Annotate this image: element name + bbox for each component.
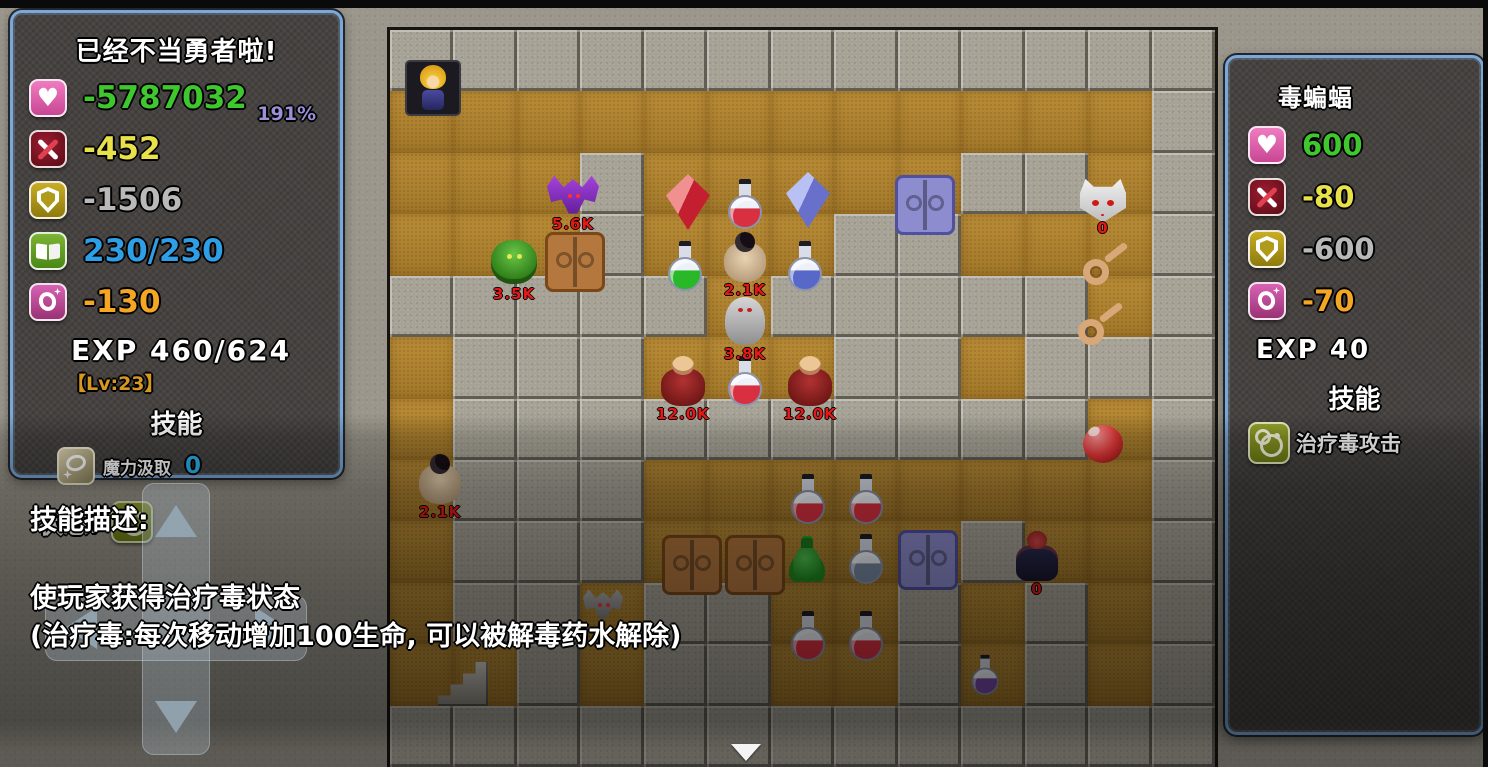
- skull-bat-enemy[interactable]: 0: [1080, 178, 1126, 222]
- red-orb-item[interactable]: [1075, 415, 1131, 471]
- top-black-bar: [0, 0, 1488, 8]
- player-panel-title: 已经不当勇者啦!: [29, 31, 324, 68]
- player-hp-percent: 191%: [257, 103, 316, 125]
- entity-value-label: 12.0K: [641, 405, 725, 423]
- entity-value-label: 3.8K: [703, 345, 787, 363]
- red-potion-item[interactable]: [838, 607, 894, 663]
- entity-value-label: 5.6K: [533, 215, 613, 233]
- player-magic-value: -130: [83, 284, 161, 320]
- player-skill-value: 0: [185, 453, 201, 479]
- red-crystal-item[interactable]: [666, 174, 710, 230]
- entity-value-label: 2.1K: [398, 503, 482, 521]
- game-screen: 5.6K3.5K2.1K3.8K12.0K12.0K02.1K0 已经不当勇者啦…: [0, 0, 1488, 767]
- player-stats-panel: 已经不当勇者啦! -5787032 191% -452 -1506 230/23…: [10, 10, 343, 478]
- player-level: 【Lv:23】: [67, 369, 324, 396]
- entity-value-label: 3.5K: [472, 285, 556, 303]
- mummy-enemy[interactable]: 2.1K: [717, 228, 773, 284]
- enemy-magic-row: -70: [1248, 279, 1469, 323]
- red-potion-item[interactable]: [780, 470, 836, 526]
- red-potion-item[interactable]: [717, 175, 773, 231]
- enemy-info-panel: 毒蝙蝠 600 -80 -600 -70 EXP 40 技能 治疗毒攻击: [1225, 55, 1484, 735]
- red-wizard-enemy[interactable]: 0: [1009, 527, 1065, 583]
- maze-entity-layer: 5.6K3.5K2.1K3.8K12.0K12.0K02.1K0: [390, 30, 1215, 767]
- purple-potion-item[interactable]: [963, 652, 1008, 697]
- skill-description-header: 技能描述:: [30, 498, 149, 537]
- hero-sprite[interactable]: [405, 60, 461, 116]
- entity-value-label: 0: [995, 580, 1079, 598]
- enemy-attack-row: -80: [1248, 175, 1469, 219]
- enemy-hp-row: 600: [1248, 123, 1469, 167]
- dungeon-maze: 5.6K3.5K2.1K3.8K12.0K12.0K02.1K0: [390, 30, 1215, 767]
- book-icon: [29, 232, 67, 270]
- red-potion-item[interactable]: [780, 607, 836, 663]
- attack-icon: [1248, 178, 1286, 216]
- red-warrior-enemy[interactable]: 12.0K: [782, 352, 838, 408]
- dpad-down-button[interactable]: [155, 701, 197, 733]
- skill-description-line2: (治疗毒:每次移动增加100生命, 可以被解毒药水解除): [30, 614, 682, 653]
- player-magic-row: -130: [29, 280, 324, 324]
- magic-icon: [1248, 282, 1286, 320]
- enemy-magic-value: -70: [1302, 284, 1354, 318]
- enemy-defense-row: -600: [1248, 227, 1469, 271]
- enemy-skills-header: 技能: [1240, 379, 1469, 416]
- player-mana-row: 230/230: [29, 229, 324, 273]
- player-mana-value: 230/230: [83, 233, 224, 269]
- player-skill-name: 魔力汲取: [103, 454, 171, 479]
- skill-description-line1: 使玩家获得治疗毒状态: [30, 576, 300, 615]
- entity-value-label: 12.0K: [768, 405, 852, 423]
- player-defense-value: -1506: [83, 182, 182, 218]
- player-attack-value: -452: [83, 131, 161, 167]
- player-hp-value: -5787032: [83, 80, 247, 116]
- dpad-up-button[interactable]: [155, 505, 197, 537]
- entity-value-label: 0: [1066, 219, 1140, 237]
- player-attack-row: -452: [29, 127, 324, 171]
- dungeon-door[interactable]: [895, 175, 955, 235]
- player-defense-row: -1506: [29, 178, 324, 222]
- stairs-tile[interactable]: [438, 662, 488, 706]
- enemy-exp: EXP 40: [1256, 335, 1469, 365]
- red-potion-item[interactable]: [838, 470, 894, 526]
- green-urn-item[interactable]: [779, 530, 835, 586]
- right-black-bar: [1483, 0, 1488, 767]
- defense-icon: [1248, 230, 1286, 268]
- dungeon-door[interactable]: [898, 530, 958, 590]
- player-skills-header: 技能: [29, 404, 324, 441]
- purple-bat-enemy[interactable]: 5.6K: [547, 174, 599, 218]
- attack-icon: [29, 130, 67, 168]
- dungeon-door[interactable]: [662, 535, 722, 595]
- green-monster-enemy[interactable]: 3.5K: [486, 232, 542, 288]
- dungeon-door[interactable]: [545, 232, 605, 292]
- blue-crystal-item[interactable]: [786, 172, 830, 228]
- ghost-enemy[interactable]: 3.8K: [717, 292, 773, 348]
- enemy-skill-row: 治疗毒攻击: [1248, 422, 1469, 464]
- silver-potion-item[interactable]: [838, 530, 894, 586]
- heart-icon: [29, 79, 67, 117]
- scroll-down-arrow-icon[interactable]: [731, 744, 761, 761]
- entity-value-label: 2.1K: [703, 281, 787, 299]
- key-item[interactable]: [1077, 237, 1133, 293]
- player-skill-row[interactable]: 魔力汲取 0: [57, 447, 324, 485]
- enemy-skill-name: 治疗毒攻击: [1296, 428, 1401, 458]
- heart-icon: [1248, 126, 1286, 164]
- dungeon-door[interactable]: [725, 535, 785, 595]
- enemy-defense-value: -600: [1302, 232, 1375, 266]
- key-item[interactable]: [1072, 297, 1128, 353]
- player-hp-row: -5787032 191%: [29, 76, 324, 120]
- enemy-hp-value: 600: [1302, 128, 1363, 162]
- player-exp: EXP 460/624: [71, 334, 324, 367]
- poison-skill-icon: [1248, 422, 1290, 464]
- enemy-name: 毒蝙蝠: [1278, 78, 1469, 113]
- magic-icon: [29, 283, 67, 321]
- mana-drain-icon: [57, 447, 95, 485]
- enemy-attack-value: -80: [1302, 180, 1354, 214]
- mummy-enemy[interactable]: 2.1K: [412, 450, 468, 506]
- defense-icon: [29, 181, 67, 219]
